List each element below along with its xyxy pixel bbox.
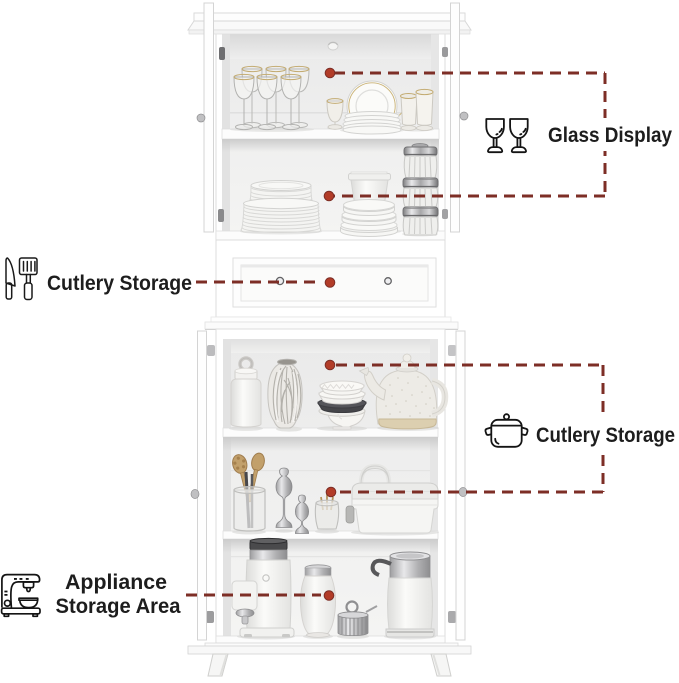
svg-text:Cutlery Storage: Cutlery Storage [47, 271, 192, 295]
svg-text:Storage Area: Storage Area [56, 594, 182, 618]
svg-text:Appliance: Appliance [65, 570, 167, 594]
svg-text:Cutlery Storage: Cutlery Storage [536, 423, 675, 447]
svg-text:Glass Display: Glass Display [548, 123, 672, 147]
